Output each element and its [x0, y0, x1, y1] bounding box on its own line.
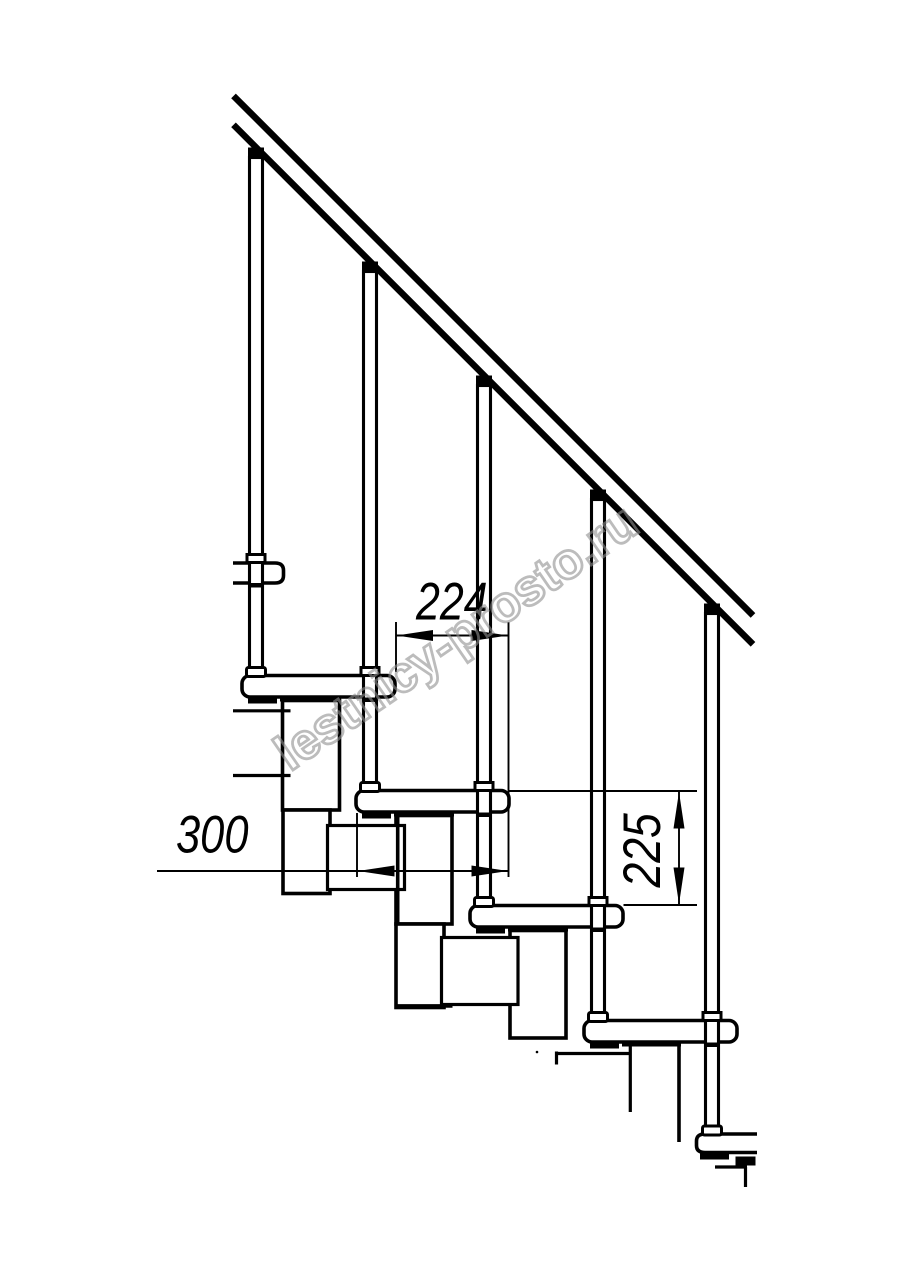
svg-text:300: 300	[176, 805, 249, 864]
svg-text:225: 225	[613, 813, 671, 889]
